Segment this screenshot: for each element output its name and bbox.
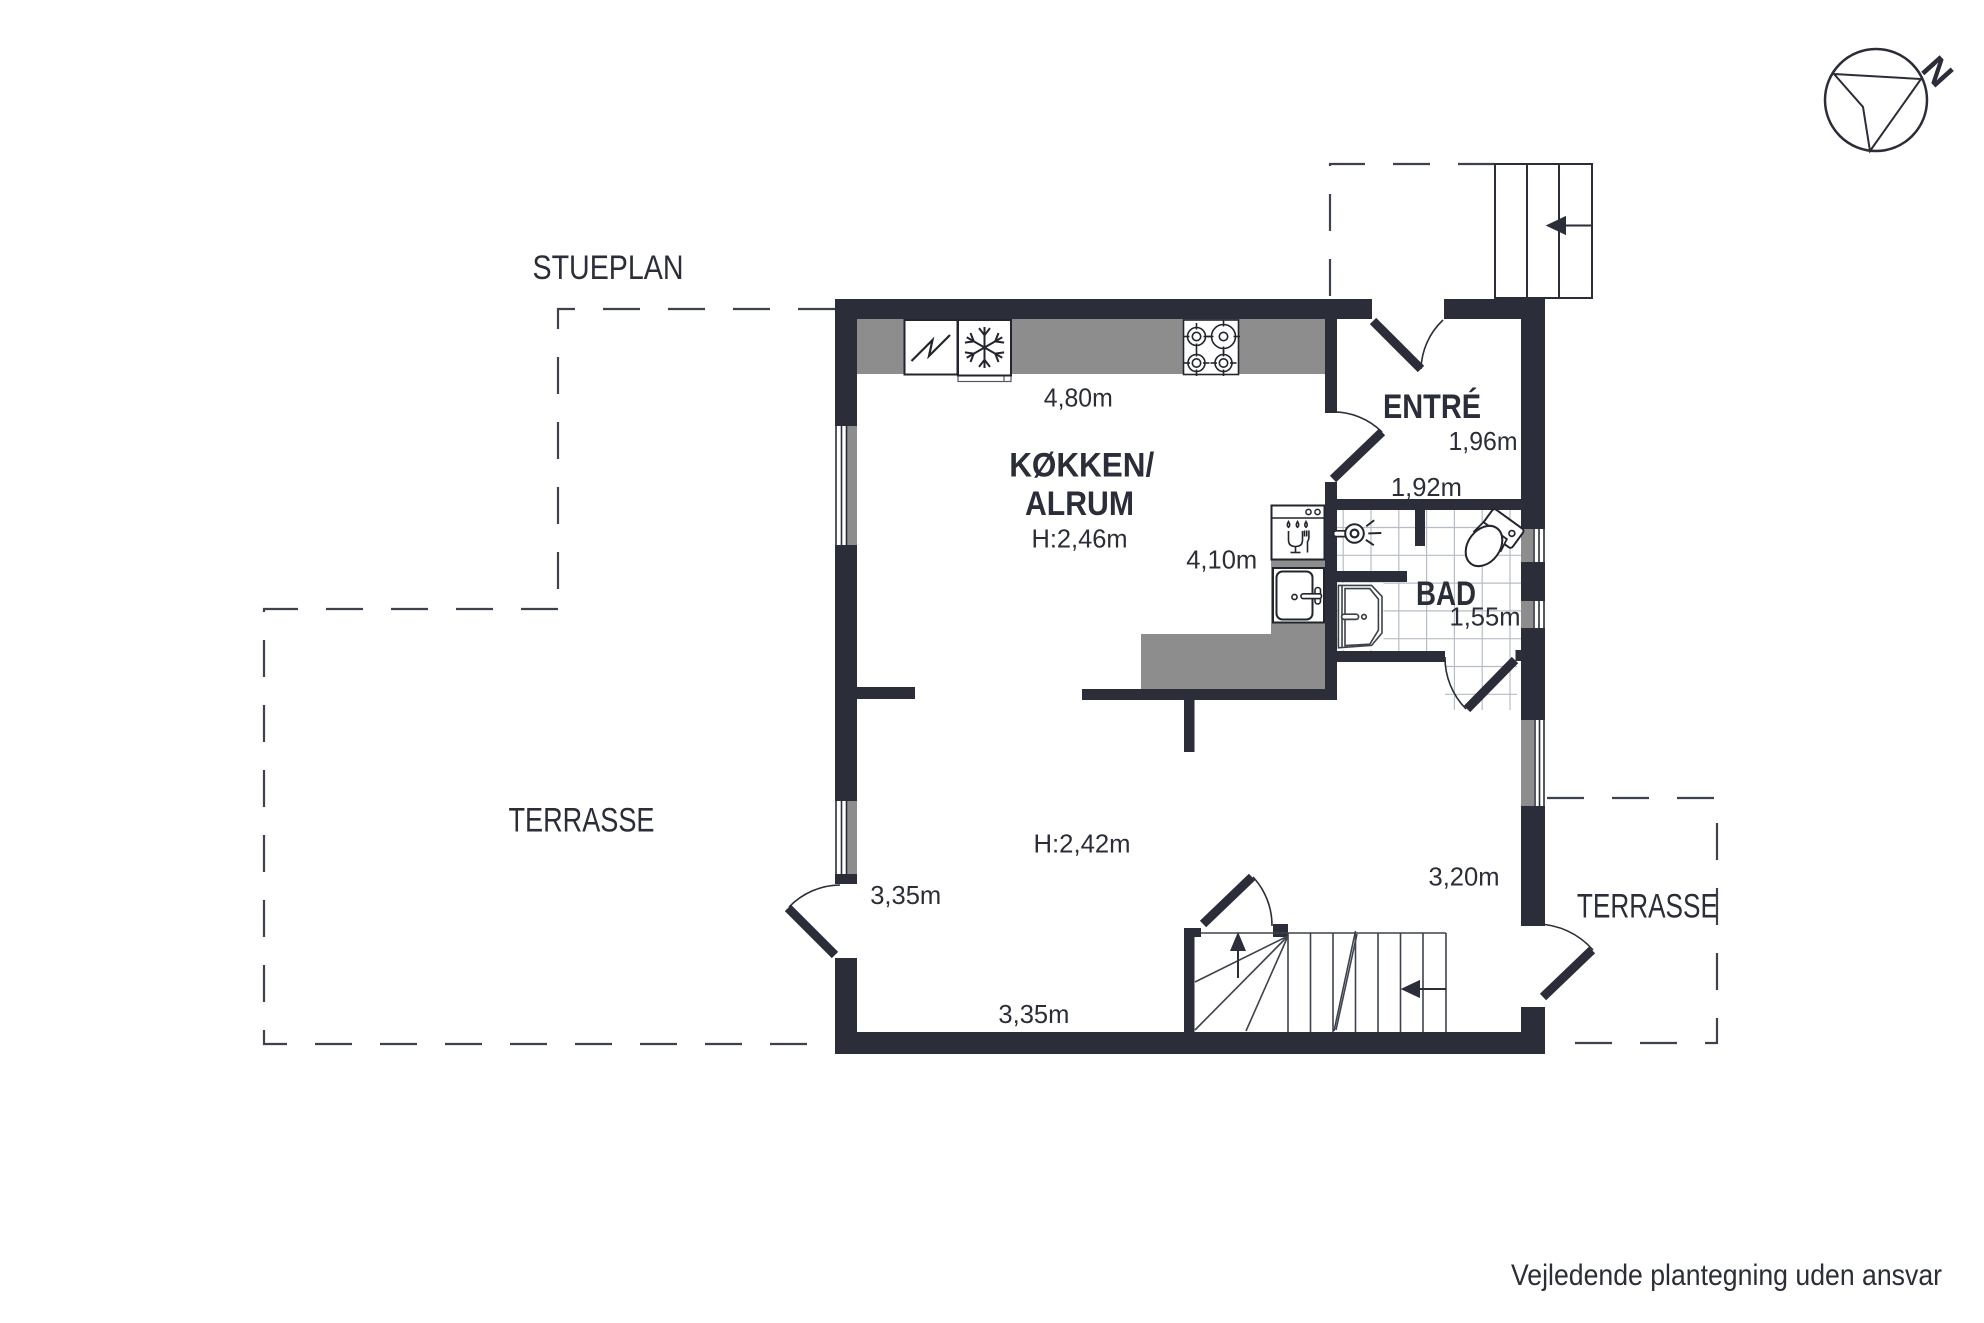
- svg-text:3,35m: 3,35m: [998, 999, 1069, 1029]
- svg-text:3,20m: 3,20m: [1429, 861, 1500, 891]
- svg-text:4,80m: 4,80m: [1044, 383, 1113, 413]
- svg-text:ALRUM: ALRUM: [1025, 485, 1134, 523]
- svg-text:1,96m: 1,96m: [1449, 426, 1518, 456]
- svg-text:3,35m: 3,35m: [870, 880, 941, 910]
- svg-text:H:2,42m: H:2,42m: [1034, 828, 1131, 858]
- svg-text:KØKKEN/: KØKKEN/: [1009, 447, 1155, 485]
- svg-text:ENTRÉ: ENTRÉ: [1383, 388, 1481, 426]
- svg-text:4,10m: 4,10m: [1186, 545, 1257, 575]
- svg-text:TERRASSE: TERRASSE: [1577, 888, 1718, 926]
- svg-text:1,92m: 1,92m: [1391, 472, 1462, 502]
- svg-text:H:2,46m: H:2,46m: [1032, 524, 1128, 554]
- svg-text:1,55m: 1,55m: [1450, 601, 1521, 631]
- svg-text:STUEPLAN: STUEPLAN: [533, 249, 684, 287]
- svg-text:Vejledende plantegning uden an: Vejledende plantegning uden ansvar: [1511, 1259, 1942, 1292]
- svg-text:TERRASSE: TERRASSE: [509, 802, 655, 840]
